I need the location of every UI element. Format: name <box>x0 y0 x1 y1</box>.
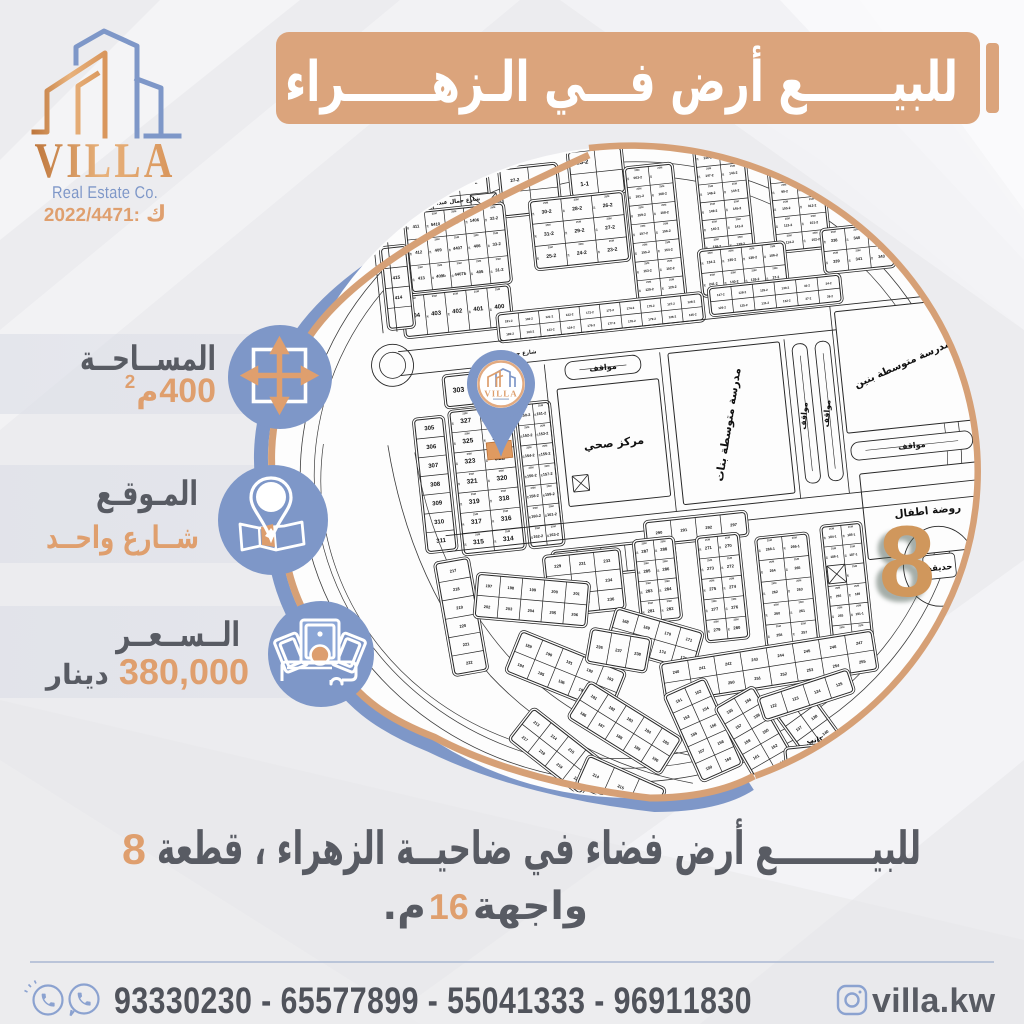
svg-text:123-2: 123-2 <box>547 327 555 332</box>
svg-text:177-2: 177-2 <box>608 321 616 326</box>
svg-text:25M: 25M <box>850 544 855 549</box>
svg-text:25M: 25M <box>454 235 459 240</box>
svg-text:25M: 25M <box>609 238 614 243</box>
svg-text:307: 307 <box>428 463 439 470</box>
svg-text:25M: 25M <box>451 209 456 214</box>
svg-text:25M: 25M <box>812 230 817 235</box>
svg-text:121-2: 121-2 <box>545 314 553 319</box>
svg-text:127-2: 127-2 <box>717 292 725 297</box>
svg-text:287: 287 <box>641 548 649 554</box>
svg-text:285: 285 <box>643 568 651 574</box>
svg-text:25M: 25M <box>657 165 662 170</box>
svg-text:181-2: 181-2 <box>505 319 513 324</box>
svg-text:174-2: 174-2 <box>626 306 634 311</box>
svg-text:25-2: 25-2 <box>546 253 557 260</box>
svg-text:25M: 25M <box>725 535 730 540</box>
svg-text:25M: 25M <box>545 223 550 228</box>
svg-text:25M: 25M <box>792 535 797 540</box>
svg-text:25M: 25M <box>659 184 664 189</box>
svg-text:25M: 25M <box>469 472 474 477</box>
svg-text:25M: 25M <box>524 425 529 430</box>
svg-text:25M: 25M <box>707 558 712 563</box>
svg-text:25M: 25M <box>548 245 553 250</box>
svg-text:204: 204 <box>527 608 535 614</box>
svg-text:25M: 25M <box>833 250 838 255</box>
svg-text:25M: 25M <box>474 289 479 294</box>
svg-text:25M: 25M <box>661 203 666 208</box>
svg-text:122-2: 122-2 <box>566 312 574 317</box>
svg-text:25M: 25M <box>540 423 545 428</box>
svg-text:409: 409 <box>434 247 442 253</box>
svg-text:25M: 25M <box>729 576 734 581</box>
svg-text:125-2: 125-2 <box>689 312 697 317</box>
svg-text:316: 316 <box>500 515 512 523</box>
svg-text:128-2: 128-2 <box>687 299 695 304</box>
svg-text:25M: 25M <box>501 489 506 494</box>
svg-text:303: 303 <box>452 387 464 395</box>
svg-text:25M: 25M <box>667 258 672 263</box>
svg-text:338: 338 <box>831 237 839 243</box>
svg-text:25M: 25M <box>710 272 715 277</box>
svg-text:31-2: 31-2 <box>544 231 555 238</box>
svg-text:25M: 25M <box>663 221 668 226</box>
svg-text:25M: 25M <box>854 583 859 588</box>
svg-text:25M: 25M <box>835 585 840 590</box>
svg-text:33-2: 33-2 <box>492 241 502 247</box>
svg-text:25M: 25M <box>548 504 553 509</box>
svg-text:1406: 1406 <box>470 217 480 223</box>
svg-text:25M: 25M <box>737 235 742 240</box>
svg-text:280: 280 <box>733 625 741 631</box>
svg-text:32-2: 32-2 <box>489 215 499 221</box>
svg-text:25M: 25M <box>710 202 715 207</box>
svg-text:25M: 25M <box>831 546 836 551</box>
svg-text:236: 236 <box>607 596 615 602</box>
svg-text:25M: 25M <box>728 248 733 253</box>
svg-text:25M: 25M <box>855 248 860 253</box>
svg-text:25M: 25M <box>730 164 735 169</box>
svg-text:178-2: 178-2 <box>628 319 636 324</box>
svg-text:25M: 25M <box>418 265 423 270</box>
svg-text:400: 400 <box>494 304 505 311</box>
svg-text:132-2: 132-2 <box>783 298 791 303</box>
svg-text:25M: 25M <box>773 602 778 607</box>
svg-text:37-2: 37-2 <box>805 296 812 301</box>
svg-text:25M: 25M <box>471 492 476 497</box>
svg-text:319: 319 <box>469 498 481 506</box>
svg-text:25M: 25M <box>503 509 508 514</box>
svg-text:25M: 25M <box>462 411 467 416</box>
svg-text:25M: 25M <box>810 213 815 218</box>
svg-text:25M: 25M <box>543 200 548 205</box>
svg-text:25M: 25M <box>709 578 714 583</box>
svg-text:25M: 25M <box>705 537 710 542</box>
svg-text:24-2: 24-2 <box>577 250 588 257</box>
svg-text:234: 234 <box>605 577 613 583</box>
svg-text:25M: 25M <box>731 597 736 602</box>
svg-text:180-2: 180-2 <box>506 332 514 337</box>
svg-text:288: 288 <box>660 546 668 552</box>
svg-text:128-2: 128-2 <box>738 290 746 295</box>
svg-text:25M: 25M <box>641 541 646 546</box>
svg-text:284: 284 <box>664 586 672 592</box>
svg-text:25M: 25M <box>604 194 609 199</box>
svg-text:25M: 25M <box>473 512 478 517</box>
svg-text:25M: 25M <box>837 605 842 610</box>
svg-text:25M: 25M <box>713 619 718 624</box>
svg-text:25M: 25M <box>473 233 478 238</box>
svg-text:25M: 25M <box>732 181 737 186</box>
svg-text:198: 198 <box>507 585 515 591</box>
svg-text:25M: 25M <box>771 581 776 586</box>
svg-text:197: 197 <box>485 583 493 589</box>
svg-text:103-2: 103-2 <box>526 329 534 334</box>
svg-text:25M: 25M <box>495 257 500 262</box>
svg-text:126-2: 126-2 <box>668 314 676 319</box>
svg-text:25M: 25M <box>852 564 857 569</box>
svg-text:25M: 25M <box>493 231 498 236</box>
svg-text:25M: 25M <box>660 539 665 544</box>
svg-text:25M: 25M <box>476 259 481 264</box>
svg-text:308: 308 <box>430 482 441 489</box>
svg-text:131-2: 131-2 <box>761 301 769 306</box>
svg-text:127-2: 127-2 <box>667 302 675 307</box>
svg-text:310: 310 <box>434 519 445 526</box>
svg-text:175-2: 175-2 <box>647 304 655 309</box>
svg-text:263: 263 <box>797 587 803 592</box>
svg-text:25M: 25M <box>727 556 732 561</box>
svg-text:25M: 25M <box>664 579 669 584</box>
svg-text:406: 406 <box>473 243 481 249</box>
svg-text:29-2: 29-2 <box>574 228 585 235</box>
svg-text:276: 276 <box>731 604 739 610</box>
svg-text:274: 274 <box>729 584 737 590</box>
svg-text:25M: 25M <box>767 538 772 543</box>
svg-text:130-2: 130-2 <box>781 286 789 291</box>
svg-text:412: 412 <box>415 249 423 255</box>
svg-text:414: 414 <box>394 295 403 301</box>
svg-text:264: 264 <box>769 568 775 573</box>
svg-text:25M: 25M <box>707 250 712 255</box>
svg-text:25M: 25M <box>785 216 790 221</box>
svg-text:25M: 25M <box>783 199 788 204</box>
svg-text:257: 257 <box>801 630 807 635</box>
svg-text:25M: 25M <box>733 617 738 622</box>
svg-text:271: 271 <box>705 545 713 551</box>
svg-text:38-2: 38-2 <box>827 294 834 299</box>
svg-text:125-2: 125-2 <box>740 303 748 308</box>
svg-text:25M: 25M <box>640 224 645 229</box>
svg-text:255: 255 <box>838 613 844 618</box>
svg-text:1-1: 1-1 <box>580 181 590 188</box>
svg-text:306: 306 <box>426 444 437 451</box>
svg-text:25M: 25M <box>856 603 861 608</box>
svg-text:339: 339 <box>833 258 841 264</box>
svg-text:206: 206 <box>571 612 579 618</box>
svg-text:317: 317 <box>471 518 483 526</box>
svg-text:403: 403 <box>431 311 442 318</box>
svg-text:261: 261 <box>799 609 805 614</box>
svg-text:281: 281 <box>647 608 655 614</box>
svg-text:25M: 25M <box>578 242 583 247</box>
svg-text:25M: 25M <box>638 205 643 210</box>
svg-text:25M: 25M <box>528 465 533 470</box>
svg-text:25M: 25M <box>751 268 756 273</box>
svg-text:305: 305 <box>424 425 435 432</box>
svg-text:277: 277 <box>711 606 719 612</box>
svg-text:189: 189 <box>855 592 861 597</box>
svg-text:25M: 25M <box>432 294 437 299</box>
svg-text:25M: 25M <box>437 263 442 268</box>
svg-text:318: 318 <box>498 495 510 503</box>
svg-text:320: 320 <box>496 475 508 483</box>
svg-text:176-2: 176-2 <box>587 323 595 328</box>
svg-text:25M: 25M <box>713 237 718 242</box>
svg-text:25M: 25M <box>772 266 777 271</box>
svg-text:25M: 25M <box>706 166 711 171</box>
svg-text:201: 201 <box>573 591 581 597</box>
svg-text:33-2: 33-2 <box>804 283 811 288</box>
svg-text:273: 273 <box>707 565 715 571</box>
svg-text:200: 200 <box>551 589 559 595</box>
svg-text:256: 256 <box>836 594 842 599</box>
svg-text:173-2: 173-2 <box>606 308 614 313</box>
svg-text:25M: 25M <box>544 464 549 469</box>
svg-text:25M: 25M <box>770 244 775 249</box>
svg-text:411: 411 <box>412 223 420 229</box>
svg-text:25M: 25M <box>538 403 543 408</box>
svg-text:25M: 25M <box>829 526 834 531</box>
svg-text:203: 203 <box>505 606 513 612</box>
svg-text:314: 314 <box>503 535 515 543</box>
svg-text:260: 260 <box>774 611 780 616</box>
svg-text:202: 202 <box>484 604 492 610</box>
svg-text:25M: 25M <box>576 219 581 224</box>
svg-text:409b: 409b <box>436 273 446 279</box>
svg-text:25M: 25M <box>495 287 500 292</box>
svg-text:25M: 25M <box>644 261 649 266</box>
svg-text:25M: 25M <box>642 242 647 247</box>
svg-text:25M: 25M <box>801 621 806 626</box>
svg-text:405: 405 <box>476 269 484 275</box>
svg-text:99-2: 99-2 <box>781 189 788 194</box>
svg-text:25M: 25M <box>839 625 844 630</box>
svg-text:258: 258 <box>776 633 782 638</box>
svg-text:286: 286 <box>662 566 670 572</box>
svg-text:25M: 25M <box>434 237 439 242</box>
svg-text:270: 270 <box>724 543 732 549</box>
svg-text:25M: 25M <box>456 261 461 266</box>
svg-text:413: 413 <box>418 275 426 281</box>
svg-text:126-2: 126-2 <box>718 305 726 310</box>
svg-text:179-2: 179-2 <box>648 317 656 322</box>
svg-text:25M: 25M <box>636 186 641 191</box>
svg-text:34-2: 34-2 <box>825 281 832 286</box>
svg-text:25M: 25M <box>735 217 740 222</box>
svg-text:25M: 25M <box>530 485 535 490</box>
svg-text:233: 233 <box>603 558 611 564</box>
svg-text:25M: 25M <box>711 599 716 604</box>
svg-text:25M: 25M <box>669 277 674 282</box>
svg-text:25M: 25M <box>662 559 667 564</box>
svg-text:25M: 25M <box>665 240 670 245</box>
svg-text:25M: 25M <box>712 219 717 224</box>
svg-text:309: 309 <box>432 500 443 507</box>
svg-text:25M: 25M <box>646 280 651 285</box>
svg-text:28-2: 28-2 <box>572 205 583 212</box>
svg-text:23-2: 23-2 <box>607 247 618 254</box>
svg-text:25M: 25M <box>498 468 503 473</box>
svg-text:415: 415 <box>392 275 401 281</box>
svg-text:25M: 25M <box>848 524 853 529</box>
svg-text:25M: 25M <box>734 199 739 204</box>
svg-text:25M: 25M <box>769 559 774 564</box>
svg-text:25M: 25M <box>532 506 537 511</box>
svg-text:25M: 25M <box>432 211 437 216</box>
svg-text:30-2: 30-2 <box>541 209 552 216</box>
svg-text:275: 275 <box>709 586 717 592</box>
svg-text:25M: 25M <box>786 233 791 238</box>
svg-text:265: 265 <box>794 566 800 571</box>
svg-text:199: 199 <box>529 587 537 593</box>
svg-text:25M: 25M <box>666 599 671 604</box>
svg-text:25M: 25M <box>453 291 458 296</box>
svg-text:25M: 25M <box>648 601 653 606</box>
svg-text:25M: 25M <box>634 168 639 173</box>
svg-text:102-2: 102-2 <box>525 316 533 321</box>
svg-text:25M: 25M <box>798 600 803 605</box>
svg-text:25M: 25M <box>776 624 781 629</box>
svg-text:25M: 25M <box>526 445 531 450</box>
svg-text:315: 315 <box>473 538 485 546</box>
svg-text:124-2: 124-2 <box>567 325 575 330</box>
svg-text:323: 323 <box>464 457 476 465</box>
svg-text:325: 325 <box>462 437 474 445</box>
svg-text:229: 229 <box>554 563 562 569</box>
svg-text:26-2: 26-2 <box>602 202 613 209</box>
svg-text:129-2: 129-2 <box>760 288 768 293</box>
svg-text:27-2: 27-2 <box>510 177 520 183</box>
svg-text:25M: 25M <box>546 484 551 489</box>
svg-text:31-2: 31-2 <box>495 267 505 273</box>
svg-text:25M: 25M <box>542 443 547 448</box>
svg-text:402: 402 <box>452 308 463 315</box>
svg-text:327: 327 <box>460 417 472 425</box>
svg-text:25M: 25M <box>606 216 611 221</box>
svg-text:25M: 25M <box>464 431 469 436</box>
svg-text:4407: 4407 <box>453 245 463 251</box>
svg-text:25M: 25M <box>796 578 801 583</box>
svg-text:321: 321 <box>466 478 478 486</box>
svg-text:279: 279 <box>713 627 721 633</box>
svg-text:27-2: 27-2 <box>605 224 616 231</box>
svg-text:205: 205 <box>549 610 557 616</box>
svg-text:272: 272 <box>727 563 735 569</box>
svg-text:25M: 25M <box>645 581 650 586</box>
svg-text:25M: 25M <box>466 451 471 456</box>
svg-text:282: 282 <box>666 606 674 612</box>
svg-text:172-2: 172-2 <box>586 310 594 315</box>
svg-text:25M: 25M <box>749 246 754 251</box>
svg-text:25M: 25M <box>858 623 863 628</box>
svg-text:25M: 25M <box>573 197 578 202</box>
svg-text:25M: 25M <box>643 561 648 566</box>
svg-text:25M: 25M <box>794 557 799 562</box>
svg-text:25M: 25M <box>708 184 713 189</box>
svg-text:231: 231 <box>579 560 587 566</box>
svg-text:262: 262 <box>772 590 778 595</box>
svg-text:25M: 25M <box>831 229 836 234</box>
svg-text:25M: 25M <box>730 270 735 275</box>
svg-text:401: 401 <box>473 306 484 313</box>
svg-text:283: 283 <box>645 588 653 594</box>
